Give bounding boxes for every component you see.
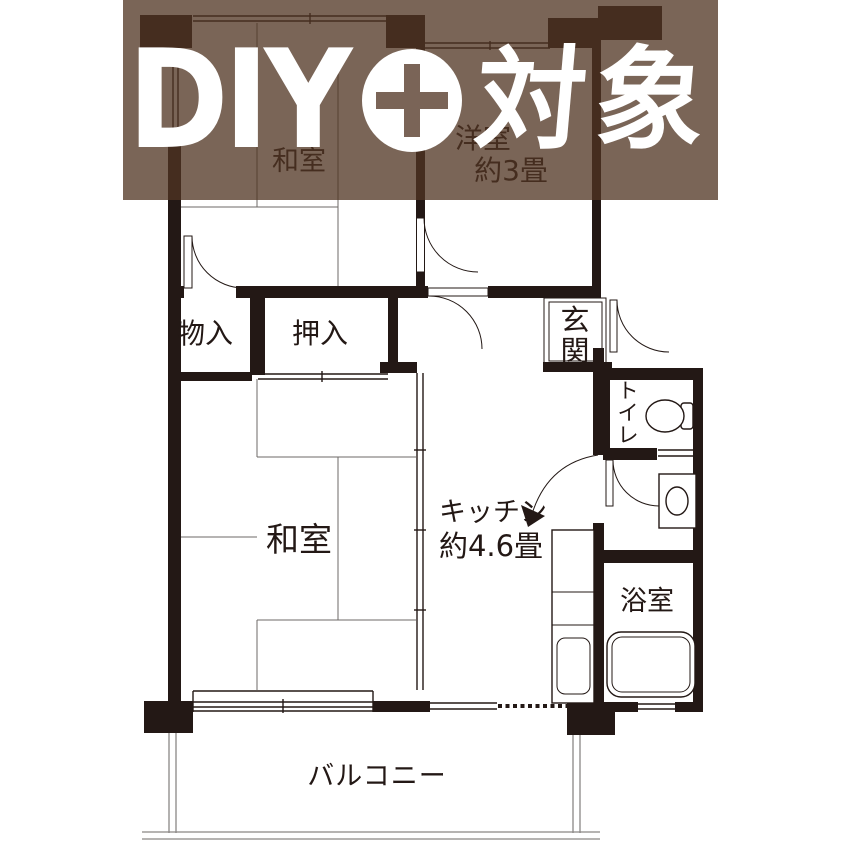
- door-washroom: [606, 460, 659, 506]
- door-entrance: [610, 300, 669, 352]
- diy-banner: DIY 対象: [123, 0, 718, 200]
- label-washitsu-center: 和室: [266, 520, 332, 559]
- banner-target-text: 対象: [471, 44, 719, 156]
- label-monoire: 物入: [177, 317, 233, 350]
- label-genkan-char2: 関: [560, 334, 589, 368]
- label-balcony: バルコニー: [307, 761, 446, 792]
- label-toilet-char1: ト: [618, 379, 639, 403]
- washbasin-icon: [659, 474, 696, 528]
- label-kitchen: キッチン: [439, 497, 547, 528]
- plus-circle-icon: [362, 49, 462, 152]
- label-bathroom: 浴室: [620, 586, 674, 617]
- kitchen-counter-icon: [552, 530, 594, 703]
- label-toilet-char2: イ: [618, 401, 639, 425]
- window-kitchen: [430, 703, 497, 709]
- toilet-door: [658, 450, 694, 456]
- bathtub-icon: [607, 632, 695, 697]
- label-kitchen-size: 約4.6畳: [439, 529, 543, 563]
- plus-icon-vertical-bar: [404, 64, 420, 137]
- label-oshiire: 押入: [292, 317, 348, 350]
- window-balcony-main: [193, 691, 373, 713]
- label-genkan-char1: 玄: [560, 303, 589, 337]
- door-top-right-room: [428, 288, 488, 349]
- door-between-top-rooms: [417, 218, 479, 272]
- label-toilet-char3: レ: [618, 423, 639, 447]
- banner-diy-text: DIY: [127, 32, 347, 169]
- floorplan-page: 和室 洋室 約3畳 物入 押入 玄 関 ト イ レ 和室 キッチン 約4.6畳 …: [0, 0, 842, 842]
- kitchen-washitsu-fusuma: [414, 373, 426, 690]
- toilet-bowl-icon: [646, 400, 693, 432]
- oshiire-fusuma: [258, 371, 388, 382]
- window-bath: [638, 704, 675, 709]
- door-top-left-room: [184, 236, 244, 288]
